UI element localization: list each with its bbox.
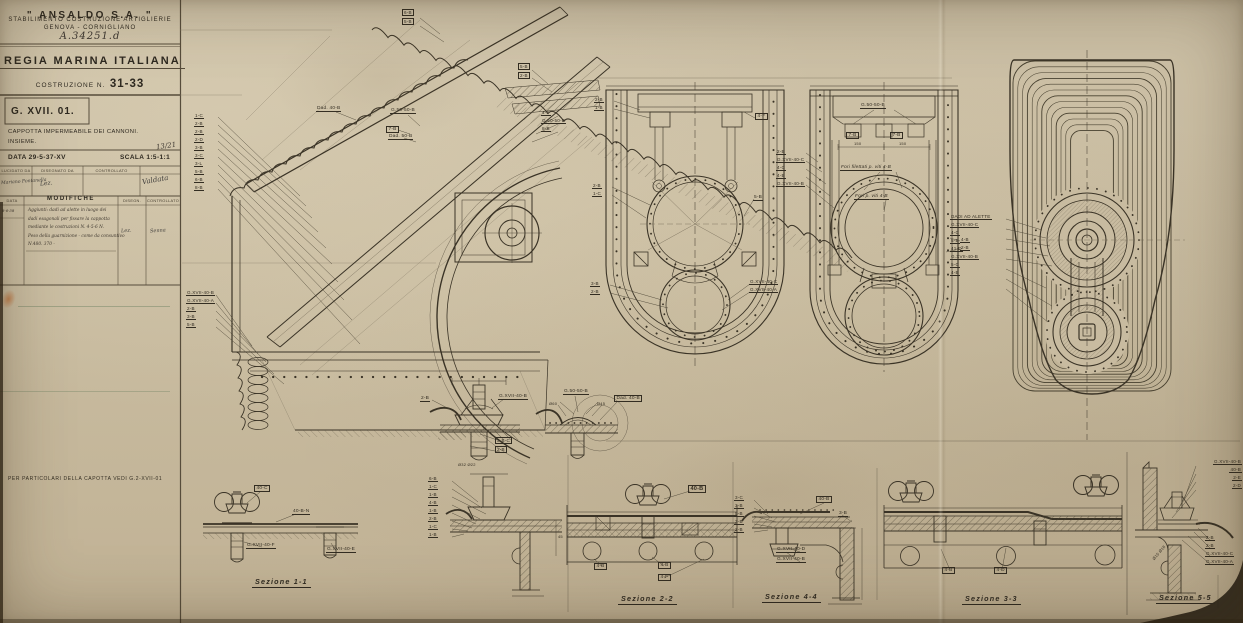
pv2-note-holes: Fori p. viti 4-B <box>854 194 889 200</box>
main-right-callouts: 4-FG.50-50-B8-B <box>541 110 566 132</box>
sez5-bottom-callouts: 2-B2-BG.XVII-40-CG.XVII-40-A <box>1205 535 1234 565</box>
callout: 2-B <box>194 129 204 135</box>
detail-a-right: G.XVII-40-B <box>498 394 528 400</box>
sez1-label-2: G.XVII-40-F <box>246 543 276 549</box>
organization-title: REGIA MARINA ITALIANA <box>0 55 185 69</box>
callout: 5-B <box>950 238 960 244</box>
pv1-right-bottom: G.XVII-40-CG.XVII-40-A <box>749 279 778 293</box>
callout: 2-B <box>194 121 204 127</box>
sez2-label-1: 4-B <box>594 563 607 570</box>
callout: 2-B <box>1205 535 1215 541</box>
organization: REGIA MARINA ITALIANA <box>0 51 180 69</box>
sez2-label-3: 4-F <box>658 574 671 581</box>
paper-stain <box>640 430 900 550</box>
callout: 1-C <box>428 484 438 490</box>
mod-line: Peso della guarnizione - come da consunt… <box>28 233 120 242</box>
callout: 2-E <box>1232 475 1242 481</box>
paper-stain <box>270 20 490 140</box>
pv1-right-top: 4-F <box>755 113 768 120</box>
details-note: PER PARTICOLARI DELLA CAPOTTA VEDI G.2-X… <box>8 476 162 482</box>
callout: G.XVII-40-B <box>776 181 805 187</box>
costruzione-label: COSTRUZIONE N. <box>36 82 106 89</box>
sez4-label-3: G.XVII-40-B <box>776 557 806 563</box>
sez1-label-0: 40-C <box>254 485 270 492</box>
callout: 2-B <box>518 72 530 79</box>
section-label-3-3: Sezione 3-3 <box>962 594 1021 605</box>
signature-disegnato: Lez. <box>40 179 53 187</box>
callout: 5-B <box>518 63 530 70</box>
detail-a-pair: 3-B-C2-B <box>495 437 512 453</box>
callout: 2-B <box>186 306 196 312</box>
callout: G.XVII-40-B <box>1213 459 1242 465</box>
top-view-cover <box>1006 50 1185 440</box>
costruzione-number: 31-33 <box>110 78 144 90</box>
callout: G.50-50-B <box>541 118 566 124</box>
pv1-left-top: 2-B1-B <box>594 97 604 111</box>
callout: G.XVII-40-C <box>776 157 805 163</box>
callout: 2-D <box>1232 483 1242 489</box>
callout: 1-B <box>428 532 438 538</box>
callout: 5-C <box>950 262 960 268</box>
sez3-label-0: 4-B <box>942 567 955 574</box>
callout: 2-B <box>590 289 600 295</box>
mod-date: 8-6-38 <box>2 208 22 213</box>
callout: 4-B <box>950 270 960 276</box>
detail-b-top: G.50-50-B <box>563 389 589 395</box>
scale: SCALA 1:5-1:1 <box>120 154 170 161</box>
sezione-3-3 <box>884 475 1122 570</box>
detail-a-left: 2-B <box>420 396 430 402</box>
callout: 40-B <box>1229 467 1242 473</box>
mod-line: dadi esagonali per fissare la cappotta <box>28 216 120 225</box>
callout: 5-B <box>186 322 196 328</box>
sez1-label-3: G.XVII-40-E <box>326 547 356 553</box>
callout: 8-B <box>194 185 204 191</box>
mod-header-controllato: CONTROLLATO <box>146 198 180 203</box>
main-left-callouts: 1-C2-B2-B2-D3-B3-C3-L5-B6-B8-B <box>194 113 204 191</box>
file-number: A.34251.d <box>0 31 180 42</box>
section-label-5-5: Sezione 5-5 <box>1156 593 1215 604</box>
pv2-dim-0: 150 <box>854 141 861 146</box>
title-block-rules <box>0 0 181 623</box>
callout: 6-B <box>428 476 438 482</box>
detail-b-d1: Ø60 <box>549 401 557 406</box>
callout: G.XVII-40-A <box>749 287 778 293</box>
callout: 4-C <box>950 230 960 236</box>
callout: 3-B-C <box>495 437 512 444</box>
callout: 3-B <box>590 281 600 287</box>
faint-rule-1 <box>18 306 170 307</box>
mod-line: Aggiunti: dadi ad alette in luogo dei <box>28 207 120 216</box>
sez5-top-callouts: G.XVII-40-B40-B2-E2-D <box>1180 459 1242 489</box>
callout: 3-B <box>186 314 196 320</box>
pv2-fitting-0: 7-B <box>846 132 859 139</box>
faint-rule-2 <box>0 391 170 392</box>
callout: 1-B <box>594 105 604 111</box>
costruzione-row: COSTRUZIONE N. 31-33 <box>0 74 180 92</box>
date: DATA 29-5-37-XV <box>8 154 66 161</box>
callout: G.XVII-40-C <box>1205 551 1234 557</box>
photo-corner-shadow <box>1140 560 1243 623</box>
callout: 2-B <box>594 97 604 103</box>
callout: 2-B <box>1205 543 1215 549</box>
callout: 3-B <box>194 145 204 151</box>
sig-header-lucidato: LUCIDATO DA <box>0 168 32 173</box>
detail-c <box>446 474 562 596</box>
main-left-callouts-2: G.XVII-40-BG.XVII-40-A2-B3-B5-B <box>186 290 215 328</box>
sheet-edge-left <box>0 202 3 623</box>
mod-line: mediante le costruzioni N. 4-5-6 N. <box>28 224 120 233</box>
callout: 2-B <box>428 516 438 522</box>
sig-header-controllato: CONTROLLATO <box>83 168 140 173</box>
plan-view-2 <box>806 82 960 372</box>
callout: G.XVII-40-B <box>186 290 215 296</box>
sheet-edge-bottom <box>0 619 1243 623</box>
mod-lines: Aggiunti: dadi ad alette in luogo deidad… <box>28 207 120 250</box>
detail-b-right: Dad. 40-B <box>614 395 642 402</box>
callout: G.XVII-40-B <box>950 254 979 260</box>
sez1-label-1: 40-B-N <box>292 509 310 515</box>
section-label-2-2: Sezione 2-2 <box>618 594 677 605</box>
callout: G.XVII-40-A <box>186 298 215 304</box>
pv1-left-mid: 2-B1-C <box>592 183 602 197</box>
mod-header-disegn: DISEGN. <box>118 198 146 203</box>
subject-line-2: INSIEME. <box>8 139 37 145</box>
callout: 3-L <box>194 161 203 167</box>
pv1-left-bottom: 3-B2-B <box>590 281 600 295</box>
detail-b-d2: Ø45 <box>597 401 605 406</box>
detail-c-dim: 45 <box>558 534 563 539</box>
callout: 2-B <box>495 446 507 453</box>
detail-a-dim: Ø32 Ø22 <box>458 462 476 467</box>
sig-header-disegnato: DISEGNATO DA <box>32 168 83 173</box>
mod-sig-disegn: Lez. <box>121 228 132 235</box>
callout: 2-B <box>592 183 602 189</box>
callout: DADI AD ALETTE <box>950 214 992 220</box>
mod-header-modifiche: MODIFICHE <box>24 196 118 202</box>
pv2-fitting-1: 7-B <box>890 132 903 139</box>
top-view-callouts: DADI AD ALETTEG.XVII-40-C4-C5-B41-DG.XVI… <box>950 214 992 276</box>
mod-sig-contr: Senna <box>150 227 166 234</box>
callout: 3-C <box>194 153 204 159</box>
detail-c-callouts: 6-B1-C1-B4-B1-B2-B1-C1-B <box>428 476 438 538</box>
callout: 1-C <box>194 113 204 119</box>
drawing-code: G. XVII. 01. <box>11 106 75 117</box>
sez2-label-2: 4-B <box>658 562 671 569</box>
callout: G.XVII-40-C <box>950 222 979 228</box>
pv1-right-mid: 5-B <box>753 195 763 201</box>
pv2-note-threads: Fori filettati p. viti 4-B <box>840 165 892 171</box>
pv2-dim-1: 150 <box>899 141 906 146</box>
callout: G.XVII-40-C <box>749 279 778 285</box>
main-mid-callouts: 5-B2-B <box>518 63 530 79</box>
subject-line-1: CAPPOTTA IMPERMEABILE DEI CANNONI. <box>8 129 138 135</box>
callout: 41-D <box>950 246 963 252</box>
callout: 4-C <box>776 165 786 171</box>
callout: 1-B <box>428 508 438 514</box>
sez3-label-1: 4-D <box>994 567 1007 574</box>
section-label-1-1: Sezione 1-1 <box>252 577 311 588</box>
callout: 4-B <box>428 500 438 506</box>
callout: 4-F <box>541 110 551 116</box>
section-label-4-4: Sezione 4-4 <box>762 592 821 603</box>
callout: 6-B <box>402 9 414 16</box>
callout: 5-B <box>194 169 204 175</box>
pv2-top-label: G.50-50-B <box>860 103 886 109</box>
pv2-left-callouts: 2-BG.XVII-40-C4-C4-BG.XVII-40-B <box>776 149 805 187</box>
callout: 2-D <box>194 137 204 143</box>
callout: 4-B <box>776 173 786 179</box>
callout: G.XVII-40-A <box>1205 559 1234 565</box>
callout: 1-C <box>592 191 602 197</box>
callout: 1-C <box>428 524 438 530</box>
mod-line: N.480. 370 - <box>28 241 120 250</box>
callout: 6-B <box>194 177 204 183</box>
callout: 2-B <box>776 149 786 155</box>
callout: 8-B <box>541 126 551 132</box>
company-establishment: STABILIMENTO COSTRUZIONE ARTIGLIERIE <box>0 17 180 23</box>
mod-header-data: DATA <box>0 198 24 203</box>
callout: 1-B <box>428 492 438 498</box>
